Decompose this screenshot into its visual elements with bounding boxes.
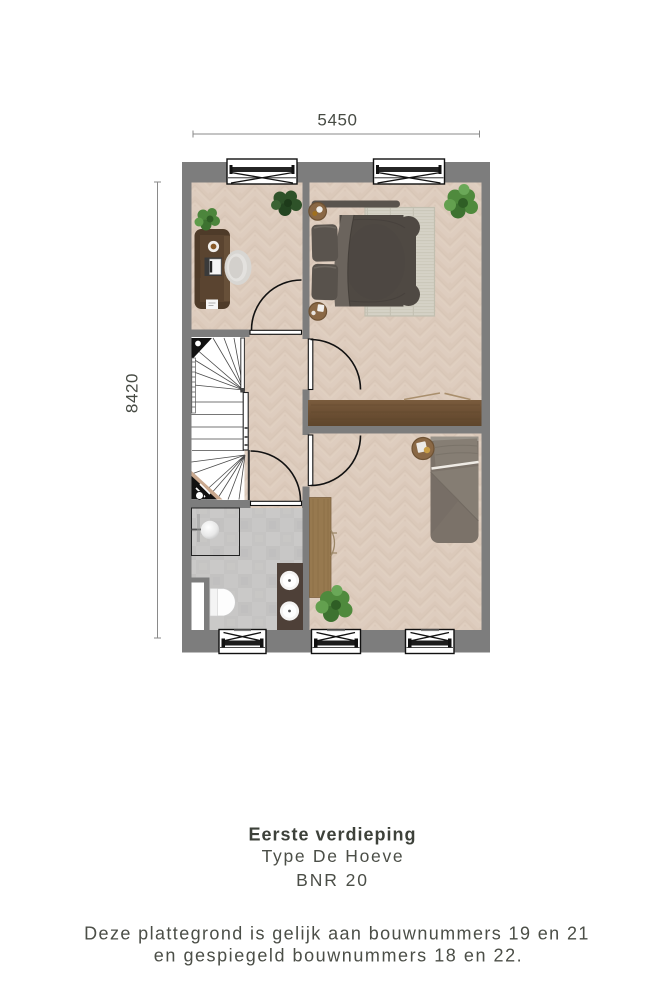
svg-text:Eerste verdieping: Eerste verdieping bbox=[248, 825, 416, 845]
svg-text:en gespiegeld bouwnummers 18 e: en gespiegeld bouwnummers 18 en 22. bbox=[154, 946, 523, 966]
svg-text:BNR 20: BNR 20 bbox=[296, 870, 369, 890]
svg-text:Deze plattegrond is gelijk aan: Deze plattegrond is gelijk aan bouwnumme… bbox=[84, 923, 590, 943]
svg-text:8420: 8420 bbox=[123, 373, 142, 413]
svg-text:5450: 5450 bbox=[317, 111, 357, 130]
svg-text:Type De Hoeve: Type De Hoeve bbox=[262, 846, 405, 866]
